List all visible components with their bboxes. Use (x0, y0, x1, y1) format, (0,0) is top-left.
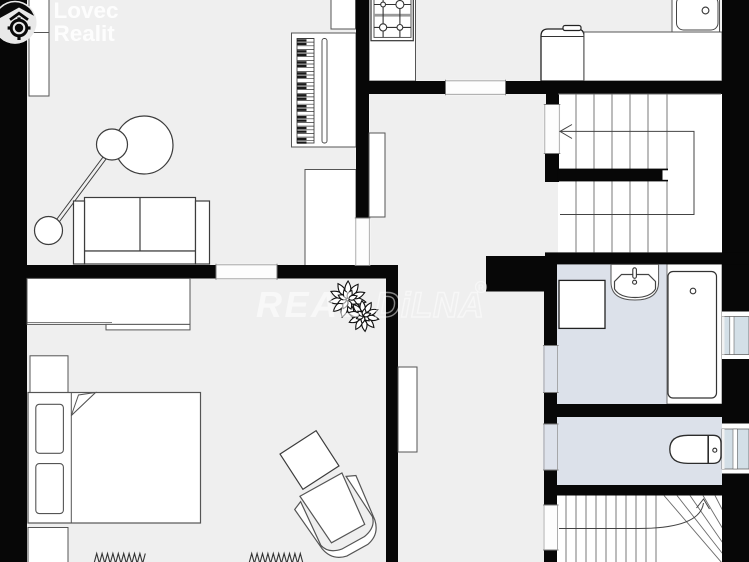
svg-text:Realit: Realit (54, 21, 116, 46)
svg-text:REAL: REAL (256, 284, 364, 325)
svg-text:DiLNA: DiLNA (375, 286, 484, 325)
svg-text:Lovec: Lovec (54, 0, 119, 23)
svg-text:R: R (478, 284, 484, 293)
